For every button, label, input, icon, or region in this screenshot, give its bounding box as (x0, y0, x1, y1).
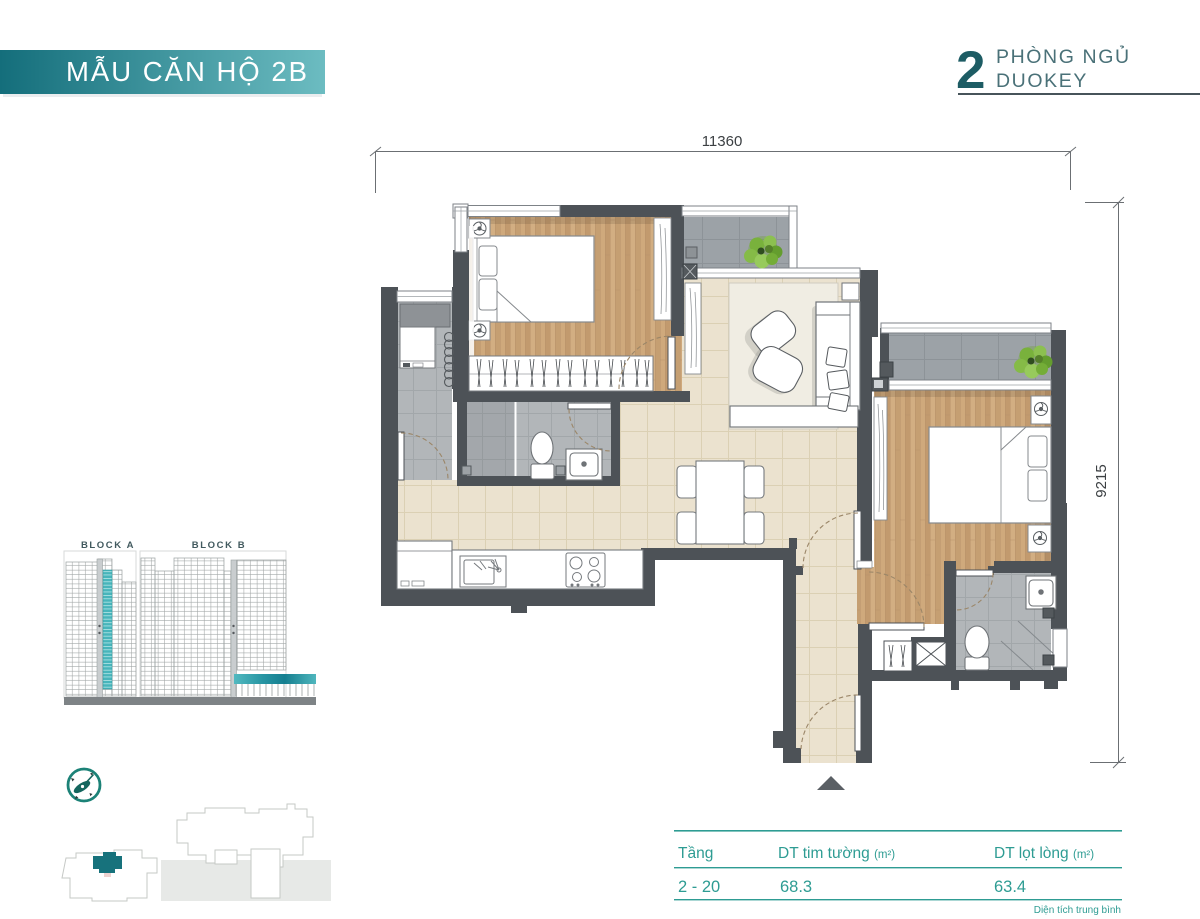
svg-text:2: 2 (956, 41, 985, 100)
svg-text:DUOKEY: DUOKEY (996, 70, 1088, 92)
svg-text:MẪU CĂN HỘ 2B: MẪU CĂN HỘ 2B (66, 56, 309, 87)
svg-text:Diện tích trung bình: Diện tích trung bình (1034, 905, 1121, 916)
svg-text:2 - 20: 2 - 20 (678, 878, 720, 896)
svg-text:Tầng: Tầng (678, 845, 713, 862)
svg-text:9215: 9215 (1093, 464, 1110, 497)
svg-text:68.3: 68.3 (780, 878, 812, 896)
svg-text:PHÒNG NGỦ: PHÒNG NGỦ (996, 44, 1131, 68)
svg-text:BLOCK B: BLOCK B (192, 540, 246, 551)
svg-text:BLOCK A: BLOCK A (81, 540, 135, 551)
svg-text:11360: 11360 (702, 133, 743, 150)
svg-text:63.4: 63.4 (994, 878, 1026, 896)
